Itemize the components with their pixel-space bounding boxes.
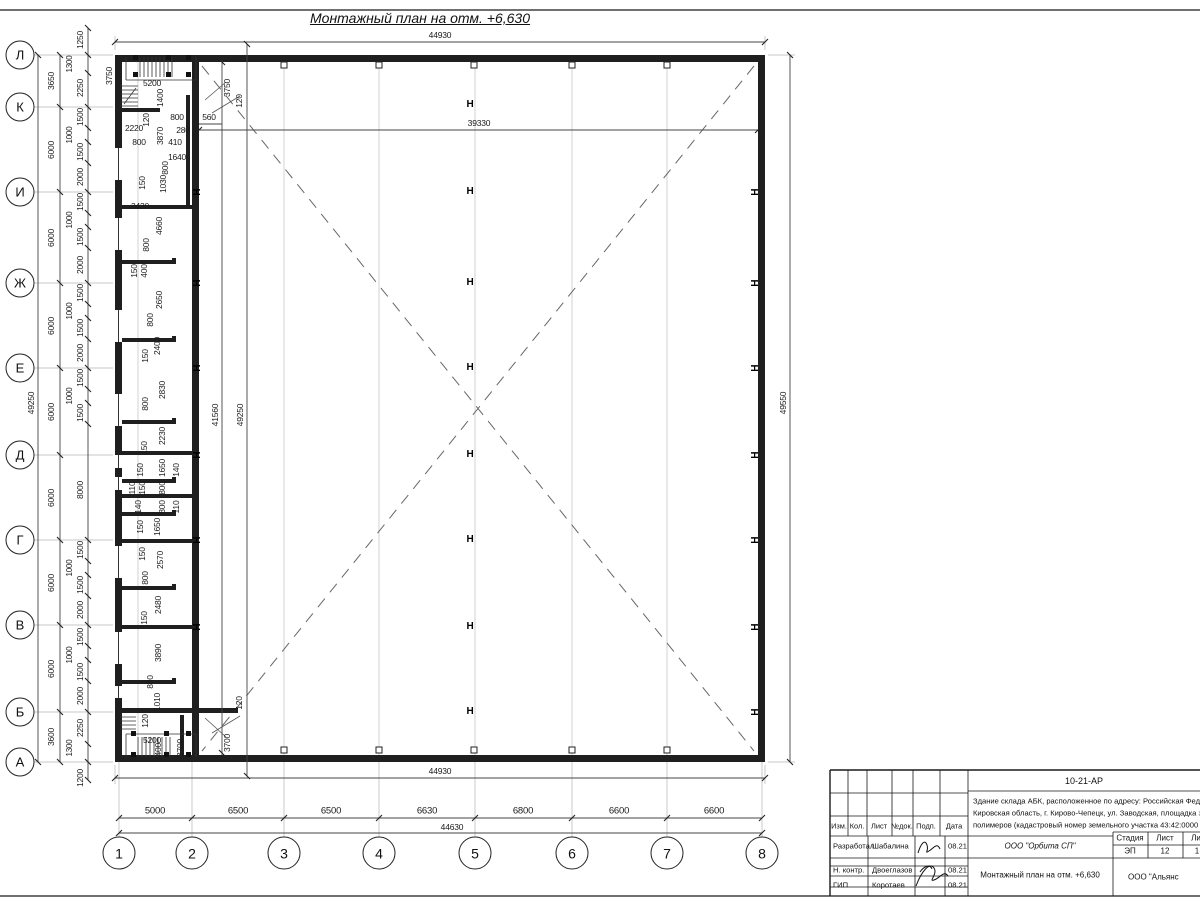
dim-label: 1640 (168, 153, 186, 162)
axis-bubble: Л (6, 41, 35, 70)
dim-top-overall: 44930 (429, 31, 452, 40)
axis-label: Б (16, 705, 25, 720)
axis-bubble: Г (6, 526, 35, 555)
dim-label: 2000 (76, 256, 85, 274)
axis-bubble: Д (6, 441, 35, 470)
dim-label: 6600 (609, 806, 629, 816)
dim-label: 3700 (223, 734, 232, 752)
dim-label: 1500 (76, 576, 85, 594)
axis-label: 4 (375, 845, 383, 861)
dim-label: 1500 (76, 143, 85, 161)
dim-label: 8000 (76, 481, 85, 499)
dim-label: 1300 (66, 56, 74, 73)
column-symbol: Н (748, 451, 758, 458)
dim-label: 1500 (76, 319, 85, 337)
column-symbol: Н (748, 188, 758, 195)
axis-label: 7 (663, 845, 671, 861)
axis-bubble: К (6, 93, 35, 122)
axis-bubble: 4 (363, 837, 396, 870)
signature-date: 08.21 (948, 842, 967, 851)
axis-label: Л (16, 48, 25, 63)
dim-label: 1030 (159, 175, 168, 193)
revision-header: Дата (946, 822, 962, 831)
person-role: ГИП (833, 881, 848, 890)
dim-label: 3700 (176, 739, 185, 757)
dim-label: 560 (202, 113, 216, 122)
axis-label: 3 (280, 845, 288, 861)
dim-label: 150 (136, 520, 145, 534)
dim-label: 1250 (76, 31, 85, 49)
axis-label: К (16, 100, 24, 115)
axis-label: А (16, 755, 25, 770)
dim-label: 800 (146, 313, 155, 327)
dim-label: 1400 (154, 743, 163, 761)
column-symbol: Н (748, 708, 758, 715)
column-symbol: Н (466, 363, 473, 373)
stage-header: Лист (1156, 834, 1173, 843)
signature-date: 08.21 (948, 866, 967, 875)
axis-bubble: И (6, 178, 35, 207)
column-symbol: Н (190, 623, 200, 630)
person-role: Н. контр. (833, 866, 864, 875)
person-name: Двоеглазов (872, 866, 912, 875)
dim-label: 800 (161, 161, 170, 175)
dim-label: 150 (140, 441, 149, 455)
dim-label: 800 (132, 138, 146, 147)
axis-bubble: 7 (651, 837, 684, 870)
dim-label: 150 (138, 481, 147, 495)
dim-label: 4660 (155, 217, 164, 235)
dim-label: 150 (138, 547, 147, 561)
person-role: Разработал (833, 842, 874, 851)
anchor-squares (281, 62, 670, 753)
column-symbol: Н (466, 187, 473, 197)
dim-label: 1200 (76, 769, 85, 787)
axis-label: Ж (14, 276, 26, 291)
dim-label: 150 (138, 176, 147, 190)
axis-bubble: Е (6, 354, 35, 383)
dim-label: 1000 (66, 212, 74, 229)
org-name: ООО "Орбита СП" (1004, 842, 1075, 851)
dim-label: 1000 (66, 127, 74, 144)
column-symbol: Н (466, 707, 473, 717)
doc-number: 10-21-АР (1065, 776, 1103, 786)
dim-label: 1000 (66, 560, 74, 577)
dim-label: 2570 (156, 551, 165, 569)
dim-label: 1500 (76, 541, 85, 559)
dim-label: 6000 (47, 229, 56, 247)
dim-label: 6000 (47, 660, 56, 678)
dim-label: 2480 (154, 596, 163, 614)
dim-label: 2000 (76, 601, 85, 619)
dim-label: 410 (168, 138, 182, 147)
dim-label: 110 (172, 501, 181, 514)
column-symbol: Н (466, 450, 473, 460)
axis-label: 1 (115, 845, 123, 861)
dim-label: 1650 (153, 518, 162, 536)
axis-bubble: А (6, 748, 35, 777)
page-title: Монтажный план на отм. +6,630 (310, 10, 530, 26)
column-symbol: Н (748, 623, 758, 630)
dim-label: 2220 (125, 124, 143, 133)
dim-label: 800 (170, 113, 184, 122)
stage-value: ЭП (1124, 847, 1136, 856)
signature-date: 08.21 (948, 881, 967, 890)
dim-label: 49550 (779, 392, 788, 415)
column-symbol: Н (748, 364, 758, 371)
person-name: Шабалина (872, 842, 909, 851)
dim-label: 1000 (66, 303, 74, 320)
dim-label: 150 (136, 463, 145, 477)
signatures (916, 842, 948, 886)
dim-label: 3650 (47, 72, 56, 90)
axis-label: Е (16, 361, 25, 376)
axis-bubble: В (6, 611, 35, 640)
axis-label: 5 (471, 845, 479, 861)
axis-bubble: 2 (176, 837, 209, 870)
dim-label: 1000 (66, 388, 74, 405)
stage-value: 12 (1161, 847, 1170, 856)
dim-label: 800 (158, 481, 167, 495)
dim-label: 2400 (153, 337, 162, 355)
dim-label: 6000 (47, 489, 56, 507)
dim-label: 3750 (223, 79, 232, 97)
dim-label: 120 (141, 714, 150, 728)
axis-bubble: Б (6, 698, 35, 727)
axis-label: 6 (568, 845, 576, 861)
person-name: Коротаев (872, 881, 905, 890)
column-symbol: Н (748, 279, 758, 286)
revision-header: Кол. (850, 822, 865, 831)
column-symbol: Н (190, 279, 200, 286)
column-symbol: Н (748, 536, 758, 543)
dim-label: 41560 (211, 404, 220, 427)
axis-bubble: 1 (103, 837, 136, 870)
dim-label: 5200 (143, 79, 161, 88)
axis-label: В (16, 618, 25, 633)
dim-bottom-building: 44930 (429, 767, 452, 776)
dim-label: 800 (142, 238, 151, 252)
column-symbol: Н (466, 622, 473, 632)
axis-bubble: 6 (556, 837, 589, 870)
dim-label: 6500 (321, 806, 341, 816)
dim-label: 1500 (76, 404, 85, 422)
dim-label: 5000 (145, 806, 165, 816)
dim-bottom-overall: 44630 (441, 823, 464, 832)
dim-label: 1000 (66, 647, 74, 664)
dim-label: 150 (130, 264, 139, 278)
dim-label: 1650 (158, 459, 167, 477)
dim-label: 400 (140, 264, 149, 278)
dim-label: 49250 (236, 404, 245, 427)
stage-header: Стадия (1116, 834, 1143, 843)
dim-label: 2000 (76, 687, 85, 705)
dim-label: 6000 (47, 403, 56, 421)
axis-label: 8 (758, 845, 766, 861)
dim-label: 1300 (66, 740, 74, 757)
dim-label: 2650 (155, 291, 164, 309)
dim-label: 49250 (27, 392, 36, 415)
dim-label: 1500 (76, 228, 85, 246)
dim-hall-width: 39330 (468, 119, 491, 128)
revision-header: №док. (891, 822, 913, 831)
dim-label: 1400 (156, 89, 165, 107)
dim-label: 150 (141, 349, 150, 363)
dim-label: 120 (235, 94, 244, 108)
column-symbol: Н (466, 535, 473, 545)
axis-bubble: 8 (746, 837, 779, 870)
dim-label: 140 (172, 463, 181, 477)
axis-label: Г (16, 533, 23, 548)
dim-label: 6800 (513, 806, 533, 816)
dim-label: 1010 (153, 693, 162, 711)
column-symbol: Н (466, 278, 473, 288)
stage-value: 1 (1195, 847, 1199, 856)
dim-label: 1500 (76, 108, 85, 126)
dim-label: 6630 (417, 806, 437, 816)
axis-label: Д (16, 448, 25, 463)
dim-label: 2000 (76, 344, 85, 362)
dim-label: 280 (176, 126, 190, 135)
dim-label: 800 (146, 675, 155, 689)
dim-label: 2230 (158, 427, 167, 445)
sheet-title: Монтажный план на отм. +6,630 (980, 871, 1100, 880)
axis-bubble: 5 (459, 837, 492, 870)
org2-name: ООО "Альянс (1128, 873, 1179, 882)
revision-header: Лист (871, 822, 887, 831)
plan-linework (0, 0, 1200, 900)
axis-label: 2 (188, 845, 196, 861)
diagonal-bracing (202, 66, 754, 751)
dim-label: 2830 (158, 381, 167, 399)
dim-label: 6000 (47, 317, 56, 335)
revision-header: Изм. (831, 822, 847, 831)
dim-label: 140 (134, 500, 143, 514)
dim-label: 3600 (47, 728, 56, 746)
column-symbol: Н (190, 451, 200, 458)
dim-label: 150 (140, 611, 149, 625)
dim-label: 800 (141, 397, 150, 411)
dim-label: 3870 (156, 127, 165, 145)
dim-label: 3890 (154, 644, 163, 662)
column-symbol: Н (190, 536, 200, 543)
dim-label: 1500 (76, 663, 85, 681)
dim-label: 2250 (76, 79, 85, 97)
column-symbol: Н (466, 100, 473, 110)
column-symbol: Н (190, 188, 200, 195)
drawing-sheet: Монтажный план на отм. +6,630 44930 3933… (0, 0, 1200, 900)
dim-label: 800 (158, 500, 167, 514)
axis-bubble: Ж (6, 269, 35, 298)
dim-label: 6600 (704, 806, 724, 816)
dim-label: 6000 (47, 141, 56, 159)
axis-label: И (15, 185, 24, 200)
description-line: Здание склада АБК, расположенное по адре… (973, 797, 1200, 806)
dim-label: 120 (235, 696, 244, 710)
dim-label: 2250 (76, 719, 85, 737)
dim-label: 1500 (76, 193, 85, 211)
column-symbol: Н (190, 364, 200, 371)
description-line: Кировская область, г. Кирово-Чепецк, ул.… (973, 809, 1200, 818)
dim-label: 110 (128, 482, 137, 495)
revision-header: Подп. (916, 822, 936, 831)
dim-label: 800 (141, 571, 150, 585)
dim-label: 6000 (47, 574, 56, 592)
axis-bubble: 3 (268, 837, 301, 870)
dim-label: 2000 (76, 168, 85, 186)
dim-label: 1500 (76, 628, 85, 646)
stage-header: Ли (1191, 834, 1200, 843)
dim-label: 1500 (76, 369, 85, 387)
dim-label: 3430 (131, 202, 149, 211)
dim-label: 3750 (105, 67, 114, 85)
description-line: полимеров (кадастровый номер земельного … (973, 821, 1198, 830)
dim-label: 6500 (228, 806, 248, 816)
dim-label: 1500 (76, 284, 85, 302)
